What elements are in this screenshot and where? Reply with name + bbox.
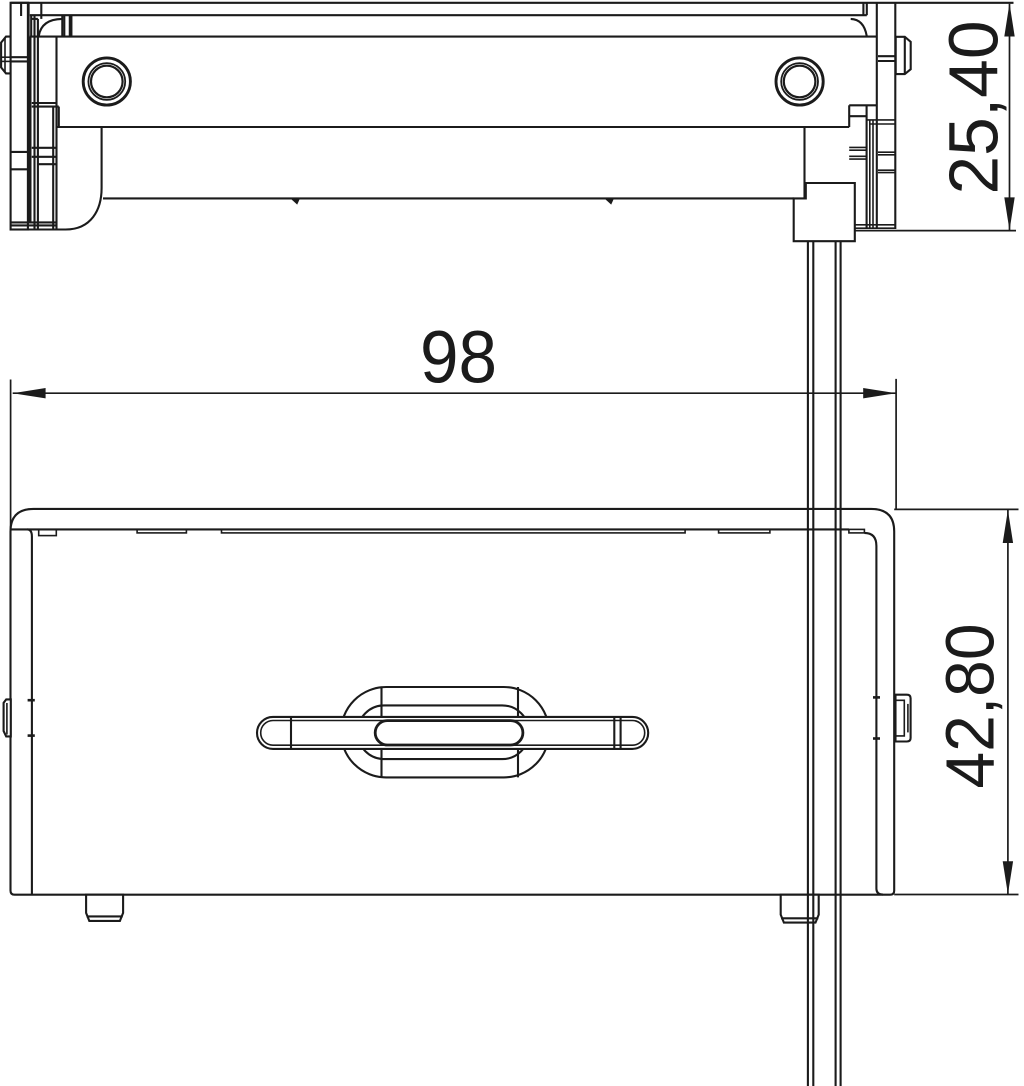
svg-text:25,40: 25,40 <box>935 21 1013 195</box>
svg-text:42,80: 42,80 <box>932 624 1009 789</box>
svg-text:98: 98 <box>420 316 497 399</box>
